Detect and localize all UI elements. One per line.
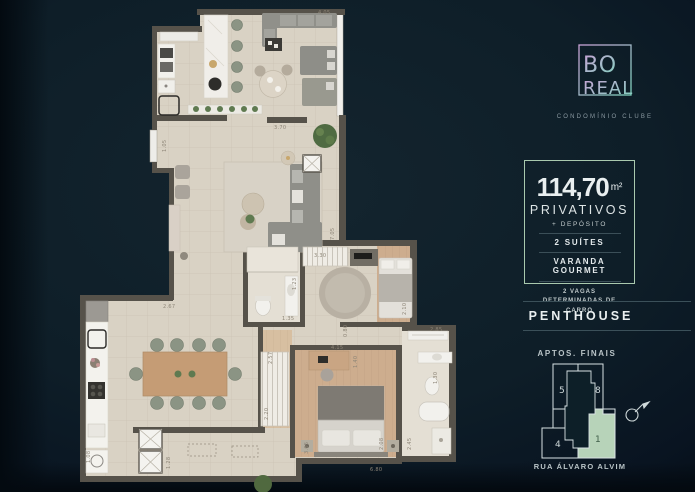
- brand-logo: BO REAL CONDOMÍNIO CLUBE: [548, 44, 662, 120]
- pillow: [322, 430, 350, 446]
- key-plan-title: APTOS. FINAIS: [517, 349, 637, 358]
- drain: [439, 438, 443, 442]
- lounger-pillow: [327, 50, 335, 58]
- north-compass-icon: [626, 402, 649, 421]
- tv: [354, 253, 372, 259]
- suite1-blanket: [379, 274, 412, 302]
- dimension-label: 0.80: [343, 325, 349, 337]
- feature-varanda: VARANDA GOURMET: [525, 257, 634, 275]
- dimension-label: 7.05: [330, 228, 336, 240]
- faucet: [165, 85, 168, 88]
- dimension-label: 4.15: [331, 345, 343, 351]
- dimension-label: 4.05: [318, 10, 330, 16]
- specs-card: 114,70m² PRIVATIVOS + DEPÓSITO 2 SUÍTES …: [524, 160, 635, 284]
- divider: [523, 330, 691, 331]
- brand-logo-mark: BO REAL: [572, 44, 638, 102]
- plant: [313, 124, 337, 148]
- game-table: [265, 38, 282, 51]
- table-plant: [246, 215, 255, 224]
- kitchen-sink: [88, 424, 105, 437]
- flowers: [91, 358, 95, 362]
- dimension-label: 6.80: [370, 467, 382, 473]
- deposit-label: + DEPÓSITO: [525, 221, 634, 228]
- dimension-label: 2.45: [407, 438, 413, 450]
- oven: [160, 48, 173, 58]
- planter-bench: [188, 105, 262, 114]
- area-label: PRIVATIVOS: [525, 203, 634, 217]
- chair: [255, 66, 266, 77]
- coffee-table: [242, 193, 264, 215]
- lounger-pillow: [327, 62, 335, 70]
- game-piece: [274, 44, 278, 48]
- sofa-pillow: [292, 170, 303, 183]
- dimension-label: 3.70: [274, 125, 286, 131]
- master-blanket: [318, 386, 384, 420]
- lounger-pillow: [326, 82, 334, 90]
- dimension-label: 3.30: [314, 253, 326, 259]
- sideboard: [169, 205, 180, 251]
- plate: [267, 77, 273, 83]
- unit-type-label: PENTHOUSE: [523, 309, 639, 323]
- armchair: [175, 185, 190, 199]
- logo-line2: REAL: [583, 78, 633, 99]
- flowers: [96, 363, 100, 367]
- sofa-pillow: [272, 234, 285, 245]
- key-plan-svg: 5 8 4 1: [535, 362, 653, 460]
- area-number: 114,70: [537, 172, 609, 202]
- burner: [91, 392, 96, 397]
- burner: [91, 385, 96, 390]
- area-unit: m²: [611, 182, 623, 193]
- toilet-tank: [255, 296, 271, 301]
- round-rug-inner: [325, 273, 365, 313]
- dining-table: [143, 352, 227, 396]
- dimension-label: 1.08: [86, 451, 92, 463]
- desk-chair: [321, 369, 334, 382]
- lamp: [391, 444, 395, 448]
- dimension-label: 1.28: [166, 457, 172, 469]
- chair: [282, 65, 293, 76]
- dimension-label: 2.08: [379, 438, 385, 450]
- dimension-label: 1.23: [292, 278, 298, 290]
- shaft-box: [303, 155, 321, 172]
- street-label: RUA ÁLVARO ALVIM: [517, 462, 643, 471]
- dimension-label: 2.20: [264, 408, 270, 420]
- pillow: [353, 430, 381, 446]
- headboard: [314, 452, 388, 457]
- table-plant: [175, 371, 182, 378]
- game-piece: [268, 41, 272, 45]
- desk: [309, 351, 349, 370]
- burner: [98, 385, 103, 390]
- area-value: 114,70m²: [525, 174, 634, 200]
- sofa-pillow: [292, 190, 303, 203]
- key-plan: 5 8 4 1: [535, 362, 653, 465]
- dimension-label: 1.30: [433, 372, 439, 384]
- living-window: [150, 130, 157, 162]
- laptop: [318, 356, 328, 363]
- unit-number-1: 1: [595, 435, 601, 445]
- bathtub: [419, 402, 449, 421]
- armchair: [175, 165, 190, 179]
- burner: [98, 392, 103, 397]
- pillow: [381, 260, 394, 269]
- microwave: [160, 62, 173, 72]
- floor-lamp: [180, 252, 188, 260]
- fridge: [86, 301, 108, 322]
- sofa-pillow: [292, 210, 303, 223]
- dimension-label: 2.85: [430, 327, 442, 333]
- unit-number-4: 4: [555, 440, 561, 450]
- tray: [209, 78, 222, 91]
- wall-shelf: [160, 32, 198, 41]
- info-panel: BO REAL CONDOMÍNIO CLUBE 114,70m² PRIVAT…: [515, 0, 695, 492]
- divider: [539, 252, 621, 253]
- dimension-label: 2.10: [402, 303, 408, 315]
- pillow: [397, 260, 410, 269]
- decor: [286, 156, 290, 160]
- feature-suites: 2 SUÍTES: [525, 238, 634, 247]
- unit-type-block: PENTHOUSE: [523, 301, 691, 331]
- dimension-label: 1.40: [353, 356, 359, 368]
- terrace-glass-railing: [337, 12, 343, 116]
- plate: [275, 86, 281, 92]
- gold-bowl: [209, 60, 217, 68]
- dimension-label: 1.35: [282, 316, 294, 322]
- divider: [539, 233, 621, 234]
- unit-number-5: 5: [559, 386, 565, 396]
- basin: [432, 354, 442, 361]
- dimension-label: 2.67: [163, 304, 175, 310]
- plant-leaf: [316, 128, 324, 136]
- dimension-label: 1.05: [162, 140, 168, 152]
- divider: [539, 281, 621, 282]
- dimension-label: 3.05: [304, 442, 310, 454]
- suite1-shower: [247, 247, 298, 272]
- shaft-box: [139, 429, 162, 449]
- logo-line1: BO: [583, 53, 617, 78]
- unit-number-8: 8: [595, 386, 601, 396]
- table-plant: [189, 371, 196, 378]
- divider: [523, 301, 691, 302]
- shaft-box: [139, 451, 162, 473]
- dimension-label: 2.57: [268, 352, 274, 364]
- brand-tagline: CONDOMÍNIO CLUBE: [548, 114, 662, 120]
- plant-leaf: [326, 136, 335, 145]
- cooktop: [88, 382, 105, 399]
